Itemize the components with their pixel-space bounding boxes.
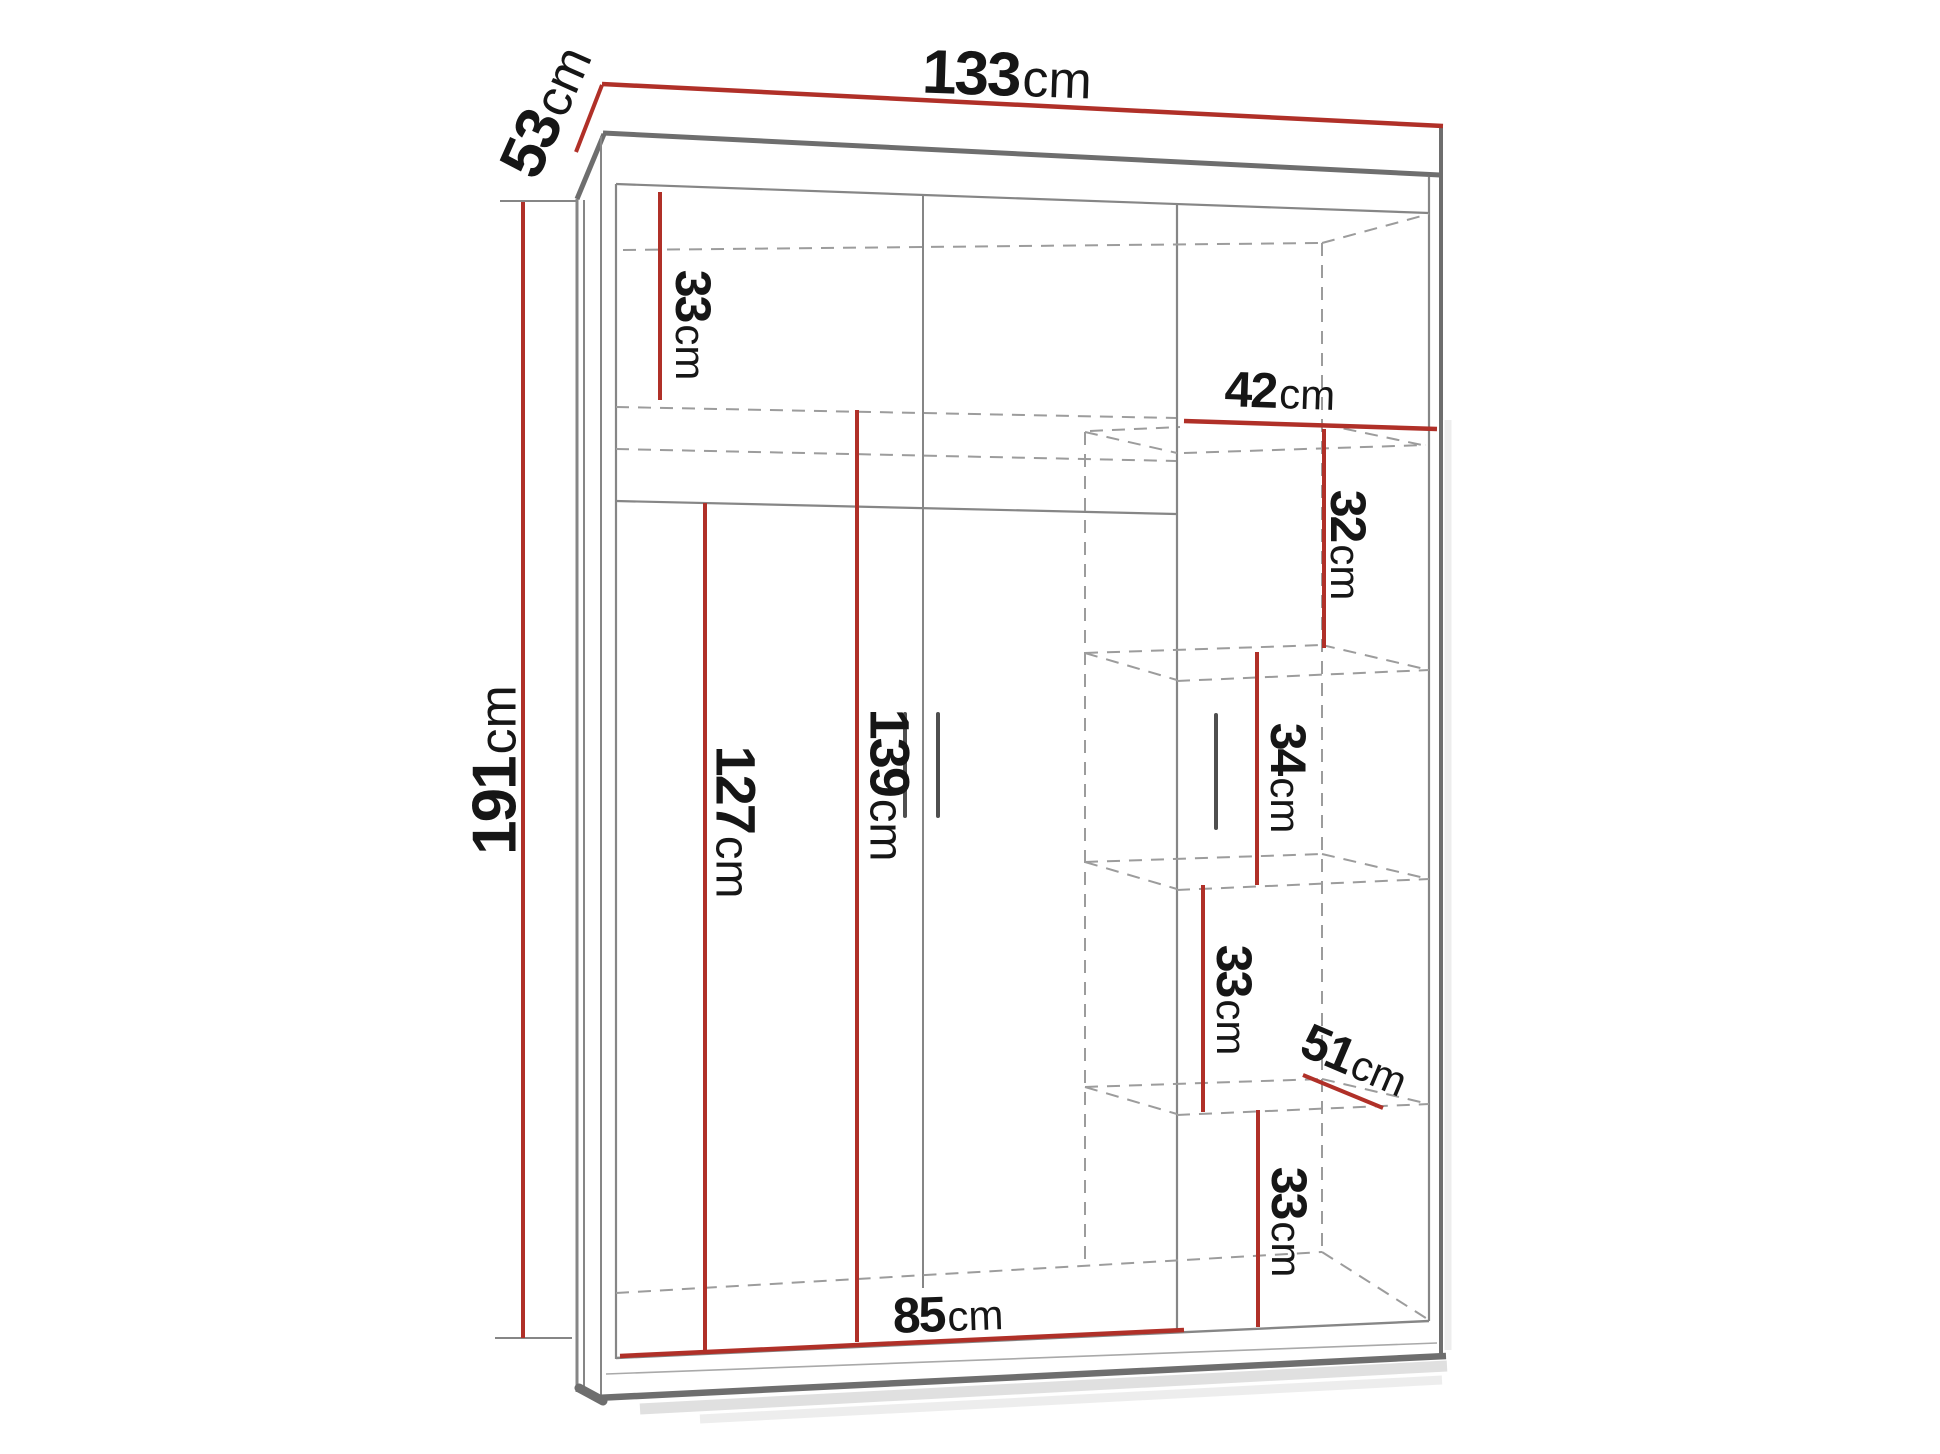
dimension-value: 33	[1205, 945, 1263, 997]
dimension-label-133: 133cm	[921, 37, 1093, 114]
top-right-depth-diagonal	[1322, 214, 1429, 243]
dimension-label-127: 127cm	[704, 745, 769, 898]
bottom-left-corner	[579, 1388, 603, 1401]
dimension-label-42: 42cm	[1224, 360, 1337, 422]
dimension-line-42	[1184, 421, 1437, 429]
left-shelf-back-edge-upper	[616, 407, 1176, 418]
dimension-label-85: 85cm	[892, 1283, 1005, 1345]
shelf3-left-diagonal	[1085, 1087, 1177, 1114]
dimension-label-33-top: 33cm	[664, 270, 722, 381]
dimension-value: 139	[858, 708, 923, 795]
dimension-unit: cm	[666, 324, 714, 380]
shelf2-right-diagonal	[1322, 854, 1429, 879]
dimension-unit: cm	[1207, 999, 1255, 1055]
dimension-value: 33	[664, 270, 722, 322]
dimension-label-32: 32cm	[1319, 490, 1377, 601]
wardrobe-dimension-diagram: 133cm 53cm 191cm 33cm 127cm 139cm 42cm 3…	[0, 0, 1940, 1454]
shelf2-front-edge	[1177, 879, 1429, 890]
shelf1-left-diagonal	[1085, 653, 1177, 680]
shelf1-back-edge	[1085, 645, 1322, 653]
right-top-shelf-back-edge	[1090, 427, 1180, 431]
dimension-label-33-low: 33cm	[1260, 1167, 1318, 1278]
dimension-value: 33	[1260, 1167, 1318, 1219]
dimension-label-191: 191cm	[460, 685, 531, 855]
dimension-value: 34	[1259, 723, 1317, 775]
left-top-shelf-edge	[616, 501, 1176, 514]
top-back-edge	[623, 243, 1322, 250]
right-top-shelf-front-edge	[1184, 445, 1426, 453]
dimension-unit: cm	[469, 685, 529, 754]
right-top-shelf-left-diagonal	[1085, 432, 1177, 453]
top-panel-front-edge	[603, 133, 1440, 175]
dimension-unit: cm	[1321, 544, 1369, 600]
dimension-value: 32	[1319, 490, 1377, 542]
shelf1-front-edge	[1177, 670, 1429, 681]
dimension-value: 191	[460, 757, 531, 854]
dimension-unit: cm	[706, 836, 761, 899]
dimension-unit: cm	[1021, 49, 1092, 111]
wardrobe-line-art	[0, 0, 1940, 1454]
dimension-value: 127	[704, 745, 769, 832]
dimension-value: 133	[921, 37, 1021, 111]
dimension-unit: cm	[1261, 777, 1309, 833]
shelf2-back-edge	[1085, 854, 1322, 862]
dimension-unit: cm	[1278, 370, 1336, 420]
left-shelf-back-edge-lower	[616, 449, 1176, 461]
shelf2-left-diagonal	[1085, 862, 1177, 889]
dimension-value: 42	[1224, 360, 1278, 420]
red-dimension-lines	[523, 84, 1443, 1356]
dimension-unit: cm	[947, 1291, 1005, 1341]
dimension-unit: cm	[860, 799, 915, 862]
door-handles	[905, 714, 1216, 828]
shelf1-right-diagonal	[1322, 645, 1429, 670]
dimension-label-139: 139cm	[858, 708, 923, 861]
dimension-unit: cm	[1262, 1221, 1310, 1277]
floor-right-diagonal	[1322, 1252, 1429, 1320]
dimension-value: 85	[892, 1285, 946, 1345]
dimension-label-34: 34cm	[1259, 723, 1317, 834]
interior-top-edge	[616, 184, 1429, 213]
dimension-label-33-mid: 33cm	[1205, 945, 1263, 1056]
